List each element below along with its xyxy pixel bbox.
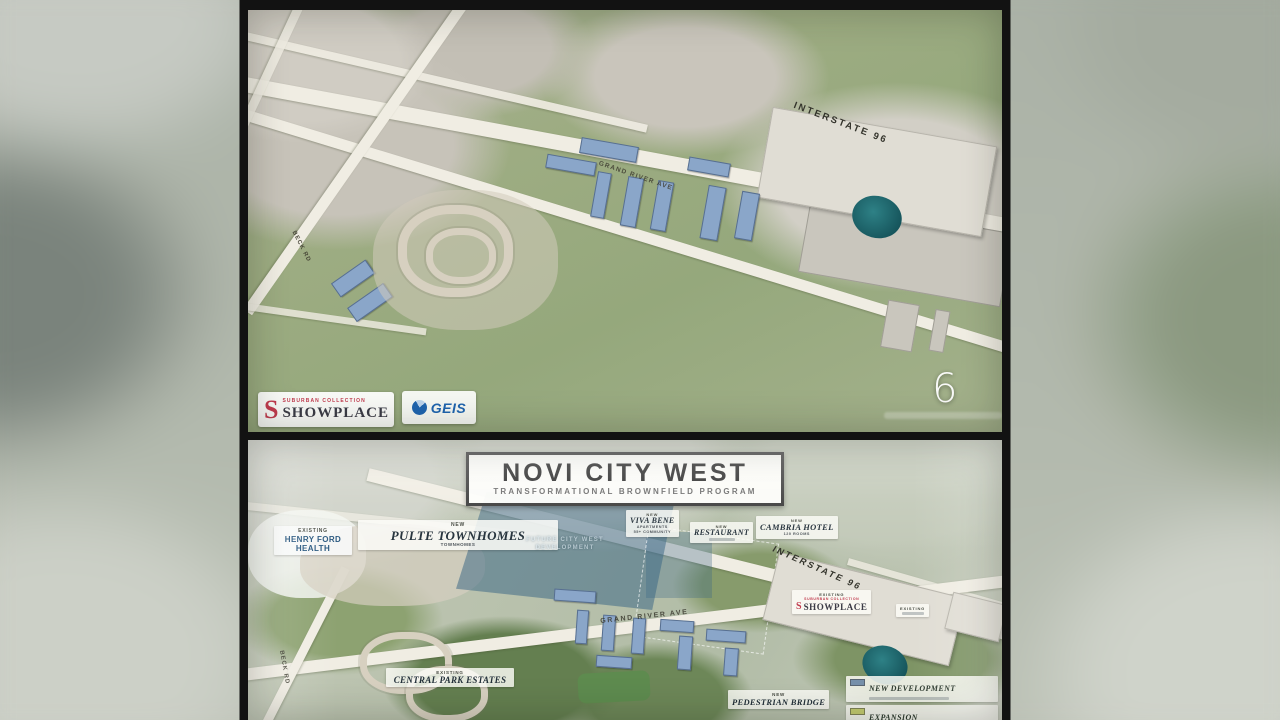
vignette-bottom [248, 440, 1002, 720]
aerial-map-bottom: NOVI CITY WEST TRANSFORMATIONAL BROWNFIE… [248, 440, 1002, 720]
vignette-top [248, 10, 1002, 432]
video-frame: INTERSTATE 96 GRAND RIVER AVE BECK RD S … [0, 0, 1280, 720]
aerial-map-top: INTERSTATE 96 GRAND RIVER AVE BECK RD S … [248, 10, 1002, 432]
presentation-slide: INTERSTATE 96 GRAND RIVER AVE BECK RD S … [240, 0, 1010, 720]
